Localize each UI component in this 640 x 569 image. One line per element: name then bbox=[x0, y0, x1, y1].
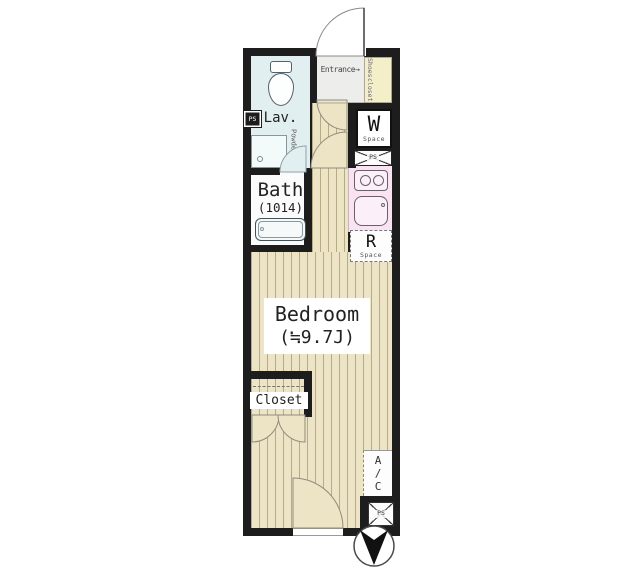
bath-label: Bath bbox=[251, 181, 310, 200]
bedroom-label-box: Bedroom (≒9.7J) bbox=[264, 298, 370, 354]
floor-plan-canvas: W Space PS PS R Space A / C PS Closet La… bbox=[0, 0, 640, 569]
ac-slash: / bbox=[375, 467, 382, 480]
shoes-closet-line1: Shoes bbox=[365, 58, 391, 78]
ac-letter: C bbox=[375, 480, 382, 493]
washer-letter: W bbox=[368, 114, 381, 135]
faucet-dot-icon bbox=[381, 203, 385, 207]
powder-sink-icon bbox=[251, 135, 287, 168]
pipe-shaft-label: PS bbox=[367, 154, 379, 161]
bathtub-inner-icon bbox=[258, 221, 303, 238]
entrance-hall bbox=[317, 56, 364, 103]
refrigerator-space-box: R Space bbox=[350, 230, 392, 262]
wall-segment bbox=[310, 56, 317, 103]
pipe-shaft-label: PS bbox=[375, 510, 387, 517]
faucet-dot-icon bbox=[257, 156, 263, 162]
burner-icon bbox=[360, 175, 371, 186]
refrigerator-space-label: Space bbox=[360, 252, 382, 259]
bedroom-name: Bedroom bbox=[275, 302, 359, 327]
powder-room-label: Powder Room bbox=[288, 126, 308, 174]
air-conditioner-box: A / C bbox=[363, 450, 392, 496]
pipe-shaft-box: PS bbox=[368, 502, 394, 526]
lavatory-label: Lav. bbox=[251, 110, 310, 126]
shoes-closet-label: Shoes closet bbox=[365, 58, 391, 102]
burner-icon bbox=[373, 175, 384, 186]
powder-room-line2: Room bbox=[288, 154, 308, 171]
wall-segment bbox=[251, 245, 312, 252]
closet-hanger-line bbox=[253, 386, 304, 387]
ac-letter: A bbox=[375, 454, 382, 467]
stove-icon bbox=[354, 170, 388, 191]
closet-wall bbox=[247, 371, 312, 379]
drain-dot-icon bbox=[260, 227, 264, 231]
bathtub-icon bbox=[255, 218, 306, 241]
entrance-arrow-icon: → bbox=[355, 65, 359, 74]
entrance-doorway-gap bbox=[316, 48, 366, 56]
entrance-label: Entrance→ bbox=[314, 65, 366, 74]
bath-size-label: (1014) bbox=[251, 200, 310, 215]
balcony-doorway-gap bbox=[293, 528, 343, 536]
pipe-shaft-box: PS bbox=[354, 150, 392, 166]
kitchen-sink-icon bbox=[354, 196, 388, 226]
wall-segment bbox=[251, 168, 280, 175]
entrance-text: Entrance bbox=[321, 65, 356, 74]
hallway-floor bbox=[312, 103, 348, 252]
toilet-tank-icon bbox=[270, 61, 292, 73]
shoes-closet-line2: closet bbox=[365, 78, 391, 101]
powder-room-line1: Powder bbox=[288, 129, 308, 154]
refrigerator-letter: R bbox=[366, 234, 376, 251]
washer-space-label: Space bbox=[363, 136, 385, 143]
bedroom-size: (≒9.7J) bbox=[279, 327, 355, 350]
closet-label: Closet bbox=[250, 392, 308, 409]
north-compass-icon bbox=[350, 524, 398, 569]
washer-space-box: W Space bbox=[356, 109, 392, 148]
